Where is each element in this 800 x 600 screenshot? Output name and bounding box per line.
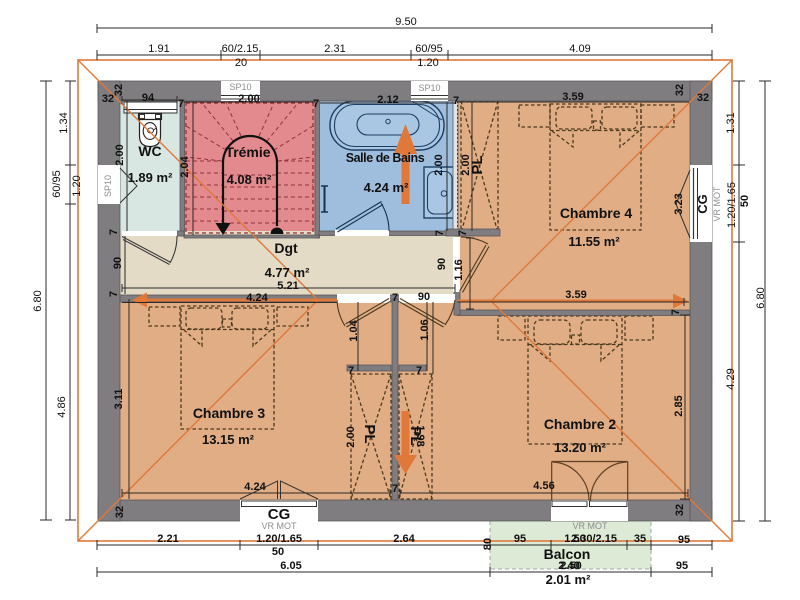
svg-text:9.50: 9.50 (395, 16, 416, 28)
svg-text:SP10: SP10 (418, 83, 440, 93)
svg-text:11.55 m²: 11.55 m² (568, 234, 620, 249)
svg-text:7: 7 (457, 230, 469, 236)
svg-text:4.08 m²: 4.08 m² (227, 172, 272, 187)
svg-text:WC: WC (138, 143, 161, 159)
svg-text:13.15 m²: 13.15 m² (202, 432, 255, 447)
svg-text:2.50: 2.50 (560, 560, 581, 572)
svg-text:13.20 m²: 13.20 m² (554, 440, 607, 455)
svg-text:1.06: 1.06 (419, 319, 431, 340)
svg-text:1.04: 1.04 (348, 319, 360, 341)
svg-text:VR MOT: VR MOT (712, 186, 722, 222)
svg-text:7: 7 (313, 98, 319, 110)
svg-text:5.21: 5.21 (277, 280, 298, 292)
svg-text:1.20: 1.20 (71, 175, 83, 196)
svg-text:4.29: 4.29 (725, 368, 737, 389)
svg-text:6.80: 6.80 (755, 287, 767, 308)
svg-text:2.31: 2.31 (324, 43, 345, 55)
svg-text:4.09: 4.09 (569, 43, 590, 55)
svg-text:1.34: 1.34 (58, 112, 70, 133)
svg-text:7: 7 (348, 365, 354, 377)
svg-text:60/95: 60/95 (51, 170, 63, 198)
svg-text:2.01 m²: 2.01 m² (546, 572, 591, 587)
svg-text:1.89 m²: 1.89 m² (128, 170, 173, 185)
svg-text:SP10: SP10 (229, 82, 251, 92)
svg-text:Salle de Bains: Salle de Bains (346, 151, 425, 165)
svg-text:32: 32 (102, 93, 114, 105)
svg-text:90: 90 (436, 258, 448, 270)
svg-text:95: 95 (678, 534, 690, 546)
svg-text:1.20/1.65: 1.20/1.65 (726, 182, 738, 228)
svg-text:2.85: 2.85 (673, 395, 685, 416)
svg-text:6.80: 6.80 (32, 290, 44, 311)
svg-text:32: 32 (674, 504, 686, 516)
svg-text:3.11: 3.11 (113, 389, 125, 410)
svg-text:VR MOT: VR MOT (262, 521, 298, 531)
svg-text:35: 35 (634, 533, 646, 545)
svg-text:7: 7 (108, 291, 120, 297)
svg-text:2.12: 2.12 (377, 94, 398, 106)
svg-text:60/2.15: 60/2.15 (222, 43, 259, 55)
svg-text:94: 94 (142, 92, 155, 104)
svg-text:2.00: 2.00 (238, 93, 259, 105)
svg-text:32: 32 (113, 84, 125, 96)
svg-text:2.00: 2.00 (114, 144, 126, 165)
svg-text:90: 90 (418, 291, 430, 303)
svg-text:7: 7 (453, 95, 459, 107)
svg-text:1.31: 1.31 (725, 112, 737, 133)
svg-text:4.24 m²: 4.24 m² (364, 180, 409, 195)
svg-text:1.16: 1.16 (453, 259, 465, 280)
svg-text:3.23: 3.23 (673, 193, 685, 214)
svg-text:1.91: 1.91 (148, 43, 169, 55)
svg-text:7: 7 (392, 292, 398, 304)
svg-text:7: 7 (392, 483, 398, 495)
svg-text:Trémie: Trémie (225, 144, 270, 160)
svg-text:1.20/1.65: 1.20/1.65 (256, 533, 302, 545)
svg-text:7: 7 (178, 98, 184, 110)
svg-text:32: 32 (114, 506, 126, 518)
svg-text:7: 7 (416, 365, 422, 377)
svg-text:Dgt: Dgt (274, 240, 298, 256)
svg-text:90: 90 (112, 257, 124, 269)
svg-text:4.24: 4.24 (244, 481, 266, 493)
svg-text:7: 7 (108, 229, 120, 235)
svg-text:95: 95 (514, 533, 526, 545)
svg-text:3.59: 3.59 (562, 91, 583, 103)
svg-text:1.98: 1.98 (414, 425, 426, 446)
svg-text:Chambre 2: Chambre 2 (544, 416, 617, 432)
svg-text:6.05: 6.05 (280, 560, 301, 572)
svg-text:PL: PL (361, 424, 378, 443)
svg-text:2.30/2.15: 2.30/2.15 (571, 533, 617, 545)
svg-text:Chambre 3: Chambre 3 (193, 405, 266, 421)
svg-text:60/95: 60/95 (415, 43, 443, 55)
svg-text:7: 7 (434, 230, 446, 236)
svg-text:SP10: SP10 (103, 175, 113, 197)
svg-text:2.00: 2.00 (433, 154, 445, 175)
svg-text:1.20: 1.20 (417, 57, 438, 69)
svg-text:50: 50 (272, 546, 284, 558)
svg-text:32: 32 (674, 84, 686, 96)
svg-text:20: 20 (235, 57, 247, 69)
svg-text:2.00: 2.00 (345, 426, 357, 447)
svg-text:80: 80 (482, 538, 494, 550)
svg-text:4.56: 4.56 (533, 480, 554, 492)
svg-text:Chambre 4: Chambre 4 (560, 205, 633, 221)
svg-text:95: 95 (676, 560, 688, 572)
svg-text:VR MOT: VR MOT (573, 521, 609, 531)
svg-text:2.04: 2.04 (179, 155, 191, 177)
svg-text:3.59: 3.59 (565, 289, 586, 301)
svg-text:4.24: 4.24 (246, 292, 268, 304)
svg-text:2.21: 2.21 (157, 533, 178, 545)
svg-text:50: 50 (739, 195, 751, 207)
svg-text:PL: PL (469, 155, 486, 174)
svg-text:4.86: 4.86 (56, 396, 68, 417)
svg-text:CG: CG (695, 194, 710, 214)
svg-text:7: 7 (670, 309, 682, 315)
svg-text:2.64: 2.64 (393, 533, 415, 545)
svg-text:4.77 m²: 4.77 m² (265, 265, 310, 280)
svg-text:32: 32 (697, 92, 709, 104)
